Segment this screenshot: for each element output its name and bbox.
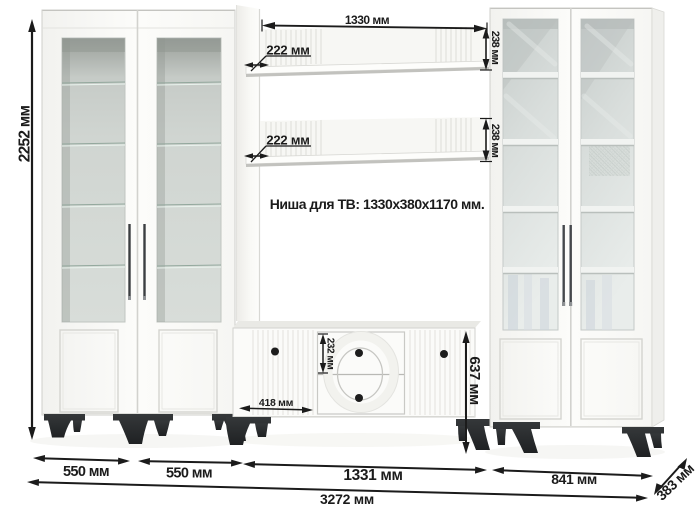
svg-text:418 мм: 418 мм [259,397,294,409]
svg-text:550 мм: 550 мм [63,464,109,480]
svg-text:1330 мм: 1330 мм [345,13,390,27]
svg-text:3272 мм: 3272 мм [320,491,374,507]
svg-text:637 мм: 637 мм [466,356,483,405]
svg-text:238 мм: 238 мм [489,31,501,65]
svg-text:841 мм: 841 мм [551,471,597,487]
svg-text:222 мм: 222 мм [266,133,309,148]
svg-text:550 мм: 550 мм [166,466,212,482]
svg-text:232 мм: 232 мм [325,338,336,370]
svg-text:222 мм: 222 мм [266,43,309,58]
svg-text:238 мм: 238 мм [489,124,501,158]
svg-text:Ниша для ТВ: 1330x380x1170 мм.: Ниша для ТВ: 1330x380x1170 мм. [270,196,485,212]
svg-text:2252 мм: 2252 мм [17,105,34,162]
svg-text:1331 мм: 1331 мм [343,467,402,484]
